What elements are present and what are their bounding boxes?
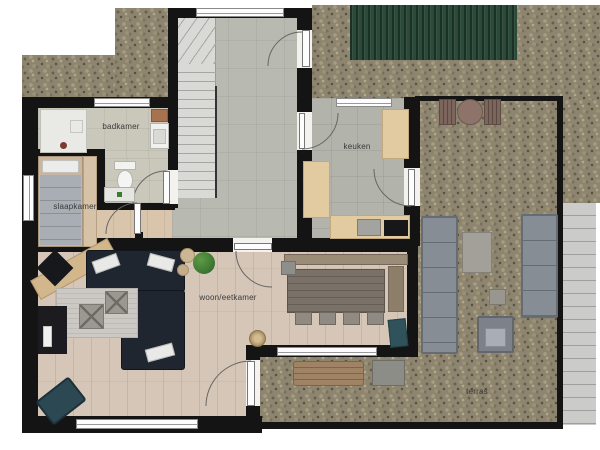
pouf-1 <box>79 304 104 329</box>
tv-remote <box>43 326 52 347</box>
wall-left-outer <box>22 97 38 424</box>
dining-cabinet <box>388 266 404 312</box>
patio-chair-left <box>439 99 456 125</box>
patio-chair-right <box>484 99 501 125</box>
floor-plan: badkamer slaapkamer keuken woon/eetkamer… <box>0 0 600 450</box>
vanity-drain <box>117 192 122 197</box>
front-door-leaf <box>302 30 310 67</box>
window-bathroom <box>94 98 150 107</box>
kitchen-stove <box>384 220 408 236</box>
shower-drain <box>60 142 67 149</box>
wood-decking <box>562 203 596 425</box>
dining-table <box>287 269 385 313</box>
wall-living-right <box>407 245 418 352</box>
bbq-table <box>372 360 405 386</box>
outdoor-armchair-seat <box>485 328 506 347</box>
window-bedroom <box>23 175 34 221</box>
pouf-2 <box>105 291 128 314</box>
dining-chair-3 <box>343 312 360 325</box>
hall-living-door-leaf <box>234 243 272 250</box>
plant <box>193 252 215 274</box>
bathroom-door-leaf <box>163 171 170 204</box>
room-label-terras: terras <box>457 387 497 396</box>
outdoor-sofa-right <box>521 214 558 318</box>
accent-chair-teal <box>388 318 409 348</box>
bed-pillow <box>42 160 79 173</box>
room-label-slaapkamer: slaapkamer <box>44 202 106 211</box>
dining-chair-2 <box>319 312 336 325</box>
gravel-area-topleft-lower <box>22 55 117 100</box>
window-dining <box>277 347 377 356</box>
kitchen-counter-right <box>382 109 409 159</box>
room-label-keuken: keuken <box>331 142 383 151</box>
window-stairwell <box>196 8 284 17</box>
kitchen-door-leaf <box>299 113 305 149</box>
hedge <box>350 5 517 60</box>
dining-side-table <box>281 261 296 275</box>
wall-stairwell-left <box>168 8 178 108</box>
basket-2 <box>177 264 189 276</box>
dining-chair-4 <box>367 312 384 325</box>
bathroom-cabinet <box>151 109 168 122</box>
garden-bench <box>293 361 364 386</box>
window-living-south <box>76 419 198 429</box>
dining-chair-1 <box>295 312 312 325</box>
room-label-badkamer: badkamer <box>95 122 147 131</box>
living-terrace-door-leaf <box>247 361 255 406</box>
staircase-winder-treads <box>176 14 216 64</box>
gravel-area-rightstrip <box>558 100 600 203</box>
washbasin-bowl <box>153 129 166 144</box>
toilet-tank <box>114 161 136 170</box>
kitchen-sink <box>357 219 381 236</box>
staircase-stringer <box>215 86 217 198</box>
kitchen-counter-left <box>303 161 330 218</box>
outdoor-sofa-left <box>421 216 458 354</box>
patio-round-table <box>457 99 483 125</box>
room-label-woon-eetkamer: woon/eetkamer <box>192 293 264 302</box>
kitchen-terrace-door-leaf <box>408 169 415 206</box>
dining-sideboard <box>284 254 408 265</box>
floor-lamp <box>249 330 266 347</box>
staircase-treads <box>176 64 216 198</box>
outdoor-coffee-table <box>462 232 492 273</box>
terrace-border-bottom <box>256 422 563 429</box>
shower-fixture <box>70 120 83 133</box>
outdoor-side-table <box>489 289 506 305</box>
window-kitchen <box>336 98 392 107</box>
gravel-area-topleft-upper <box>115 8 168 100</box>
bedroom-door-leaf <box>134 203 141 234</box>
